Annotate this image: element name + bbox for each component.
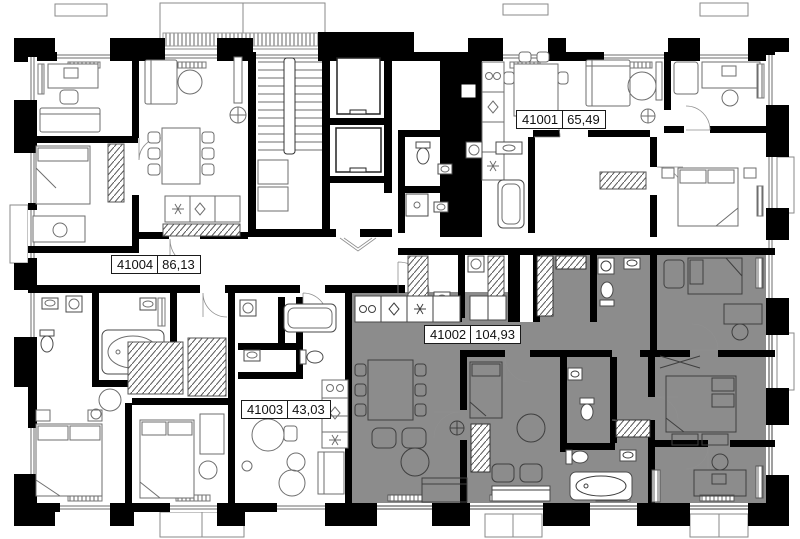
- unit-id: 41001: [517, 111, 563, 128]
- bathtub-icon: [570, 472, 632, 500]
- toilet-icon: [600, 282, 614, 306]
- unit-label-41001[interactable]: 41001 65,49: [516, 110, 606, 129]
- unit-label-41002[interactable]: 41002 104,93: [424, 325, 521, 344]
- staircase: [258, 58, 322, 211]
- washer-icon: [468, 256, 484, 272]
- washer-icon: [66, 296, 82, 312]
- toilet-icon: [416, 142, 430, 164]
- unit-area: 65,49: [563, 111, 605, 128]
- unit-id: 41004: [112, 256, 158, 273]
- bathtub-icon: [284, 304, 336, 332]
- washer-icon: [466, 142, 482, 158]
- toilet-icon: [580, 398, 594, 420]
- floor-plan: 41001 65,49 41002 104,93 41003 43,03 410…: [0, 0, 800, 539]
- furniture-unit-41003: [240, 300, 348, 496]
- building-entrance: [340, 238, 376, 251]
- elevators: [336, 58, 381, 172]
- bathtub-icon: [498, 180, 524, 228]
- toilet-icon: [40, 330, 54, 352]
- toilet-icon: [566, 450, 588, 464]
- unit-label-41003[interactable]: 41003 43,03: [241, 400, 331, 419]
- furniture-unit-41004: [33, 57, 246, 498]
- shower-icon: [406, 194, 428, 216]
- unit-id: 41003: [242, 401, 288, 418]
- unit-area: 104,93: [471, 326, 520, 343]
- unit-id: 41002: [425, 326, 471, 343]
- unit-label-41004[interactable]: 41004 86,13: [111, 255, 201, 274]
- unit-area: 43,03: [288, 401, 330, 418]
- unit-area: 86,13: [158, 256, 200, 273]
- washer-icon: [240, 300, 256, 316]
- toilet-icon: [300, 350, 323, 364]
- washer-icon: [598, 258, 614, 274]
